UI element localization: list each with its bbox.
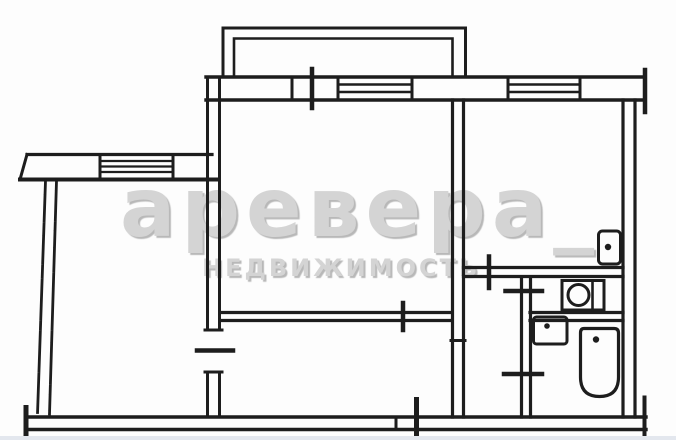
scan-edge-artifact xyxy=(0,436,676,440)
wall-corridor-sanitary xyxy=(522,277,531,417)
toilet-icon xyxy=(562,281,604,311)
scan-artifacts xyxy=(86,180,305,355)
wall-bottom-exterior xyxy=(26,398,646,435)
wall-bedroom-exterior-left xyxy=(38,181,57,414)
window-living-room xyxy=(340,85,411,93)
kitchen-sink-icon xyxy=(599,231,621,264)
wall-living-hall-divider xyxy=(220,313,452,321)
bathtub-icon xyxy=(581,329,619,397)
wall-right-exterior xyxy=(623,100,635,417)
window-bedroom xyxy=(101,161,172,172)
wall-central-vertical xyxy=(451,100,465,417)
floor-plan-drawing xyxy=(0,0,676,440)
balcony-railing xyxy=(223,28,466,76)
window-kitchen xyxy=(510,85,579,93)
wall-bedroom-living-divider xyxy=(205,77,222,417)
floor-plan-scan: аревера_ НЕДВИЖИМОСТЬ xyxy=(0,0,676,440)
